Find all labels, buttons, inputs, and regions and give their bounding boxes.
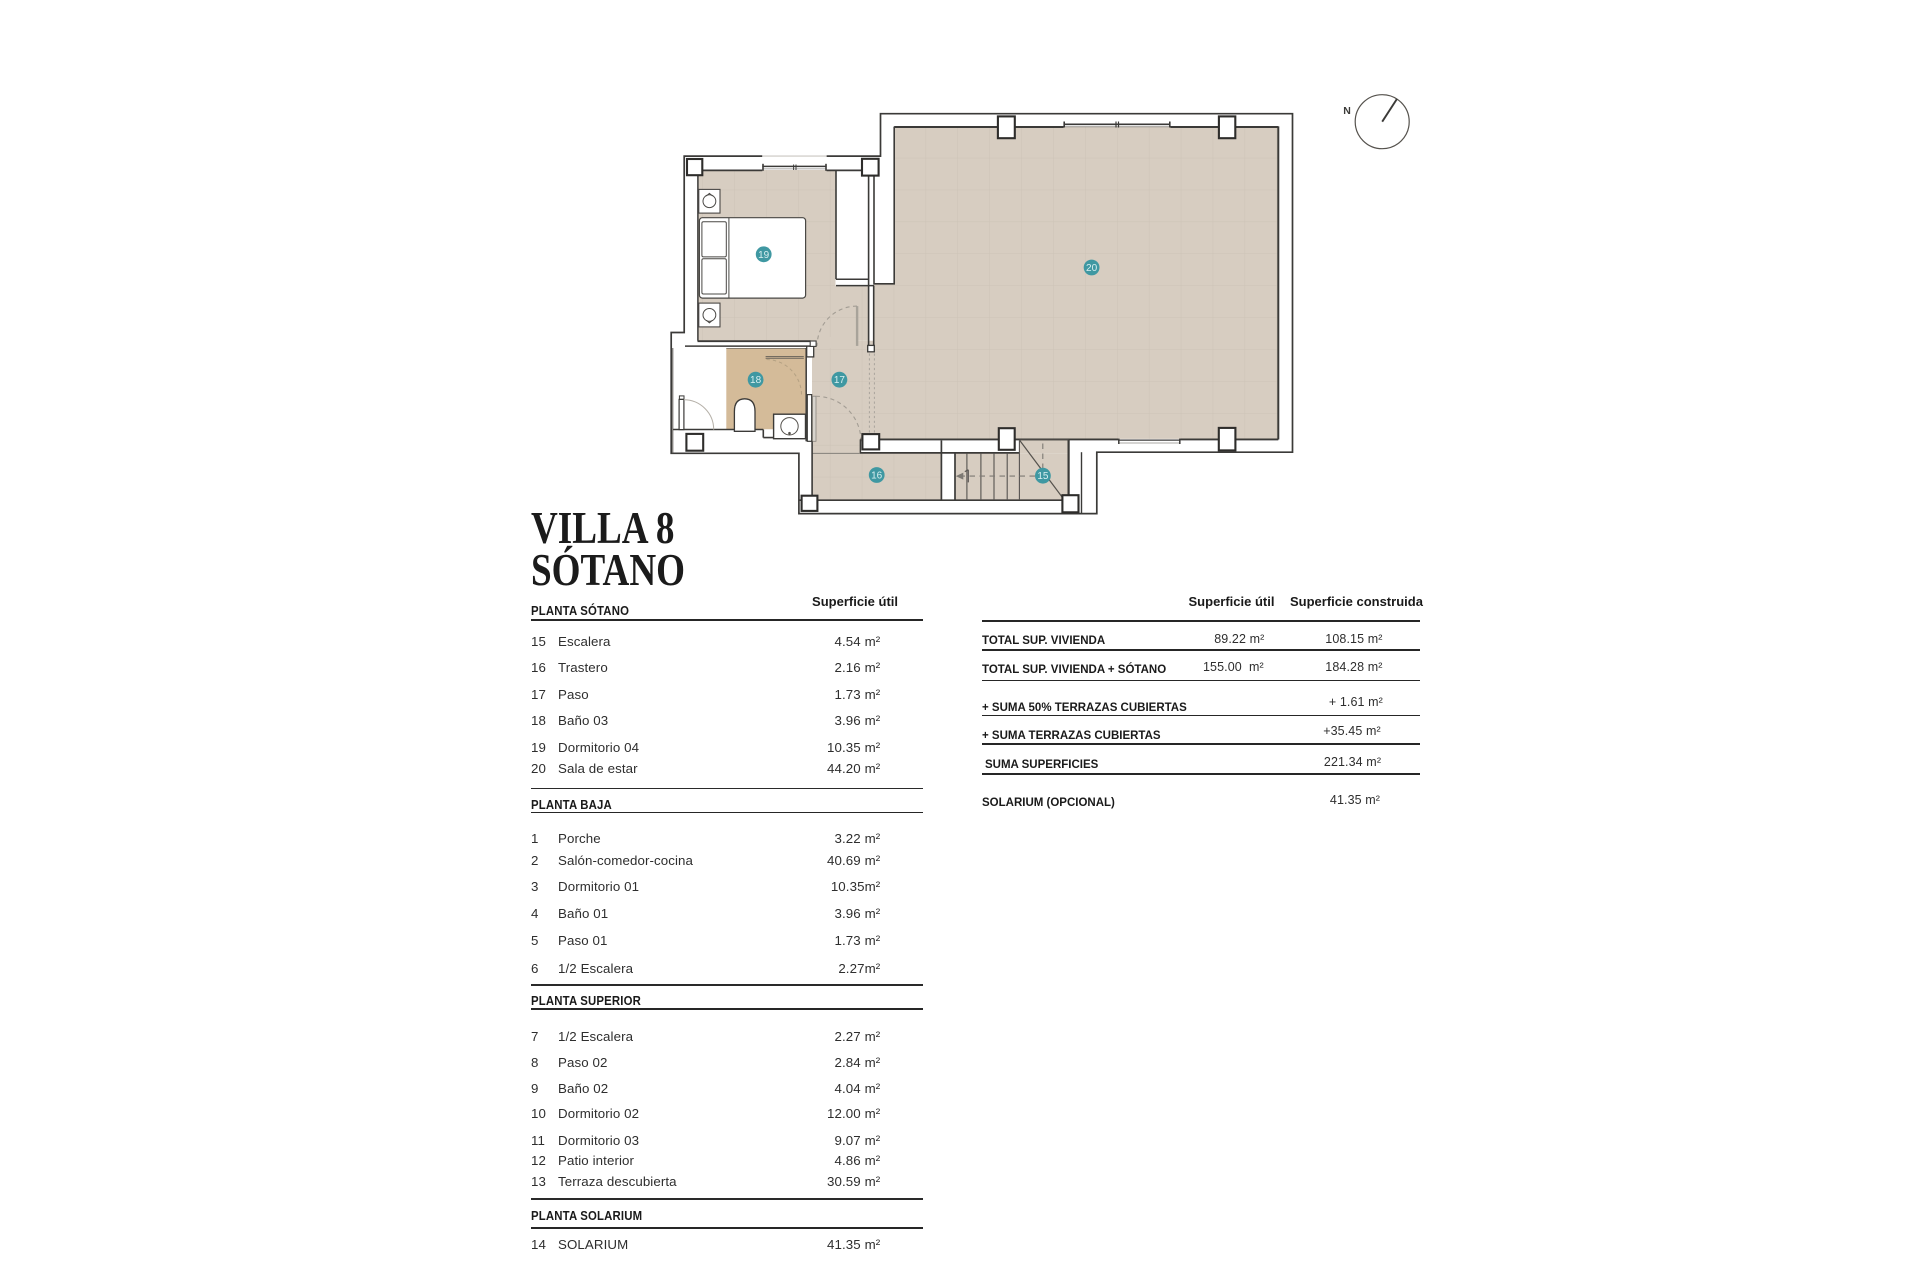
svg-text:20: 20 bbox=[1086, 263, 1098, 274]
svg-text:18: 18 bbox=[750, 375, 762, 386]
svg-text:17: 17 bbox=[834, 375, 846, 386]
svg-text:19: 19 bbox=[758, 250, 770, 261]
svg-text:15: 15 bbox=[1037, 471, 1049, 482]
svg-text:16: 16 bbox=[871, 471, 883, 482]
svg-text:N: N bbox=[1343, 105, 1351, 117]
